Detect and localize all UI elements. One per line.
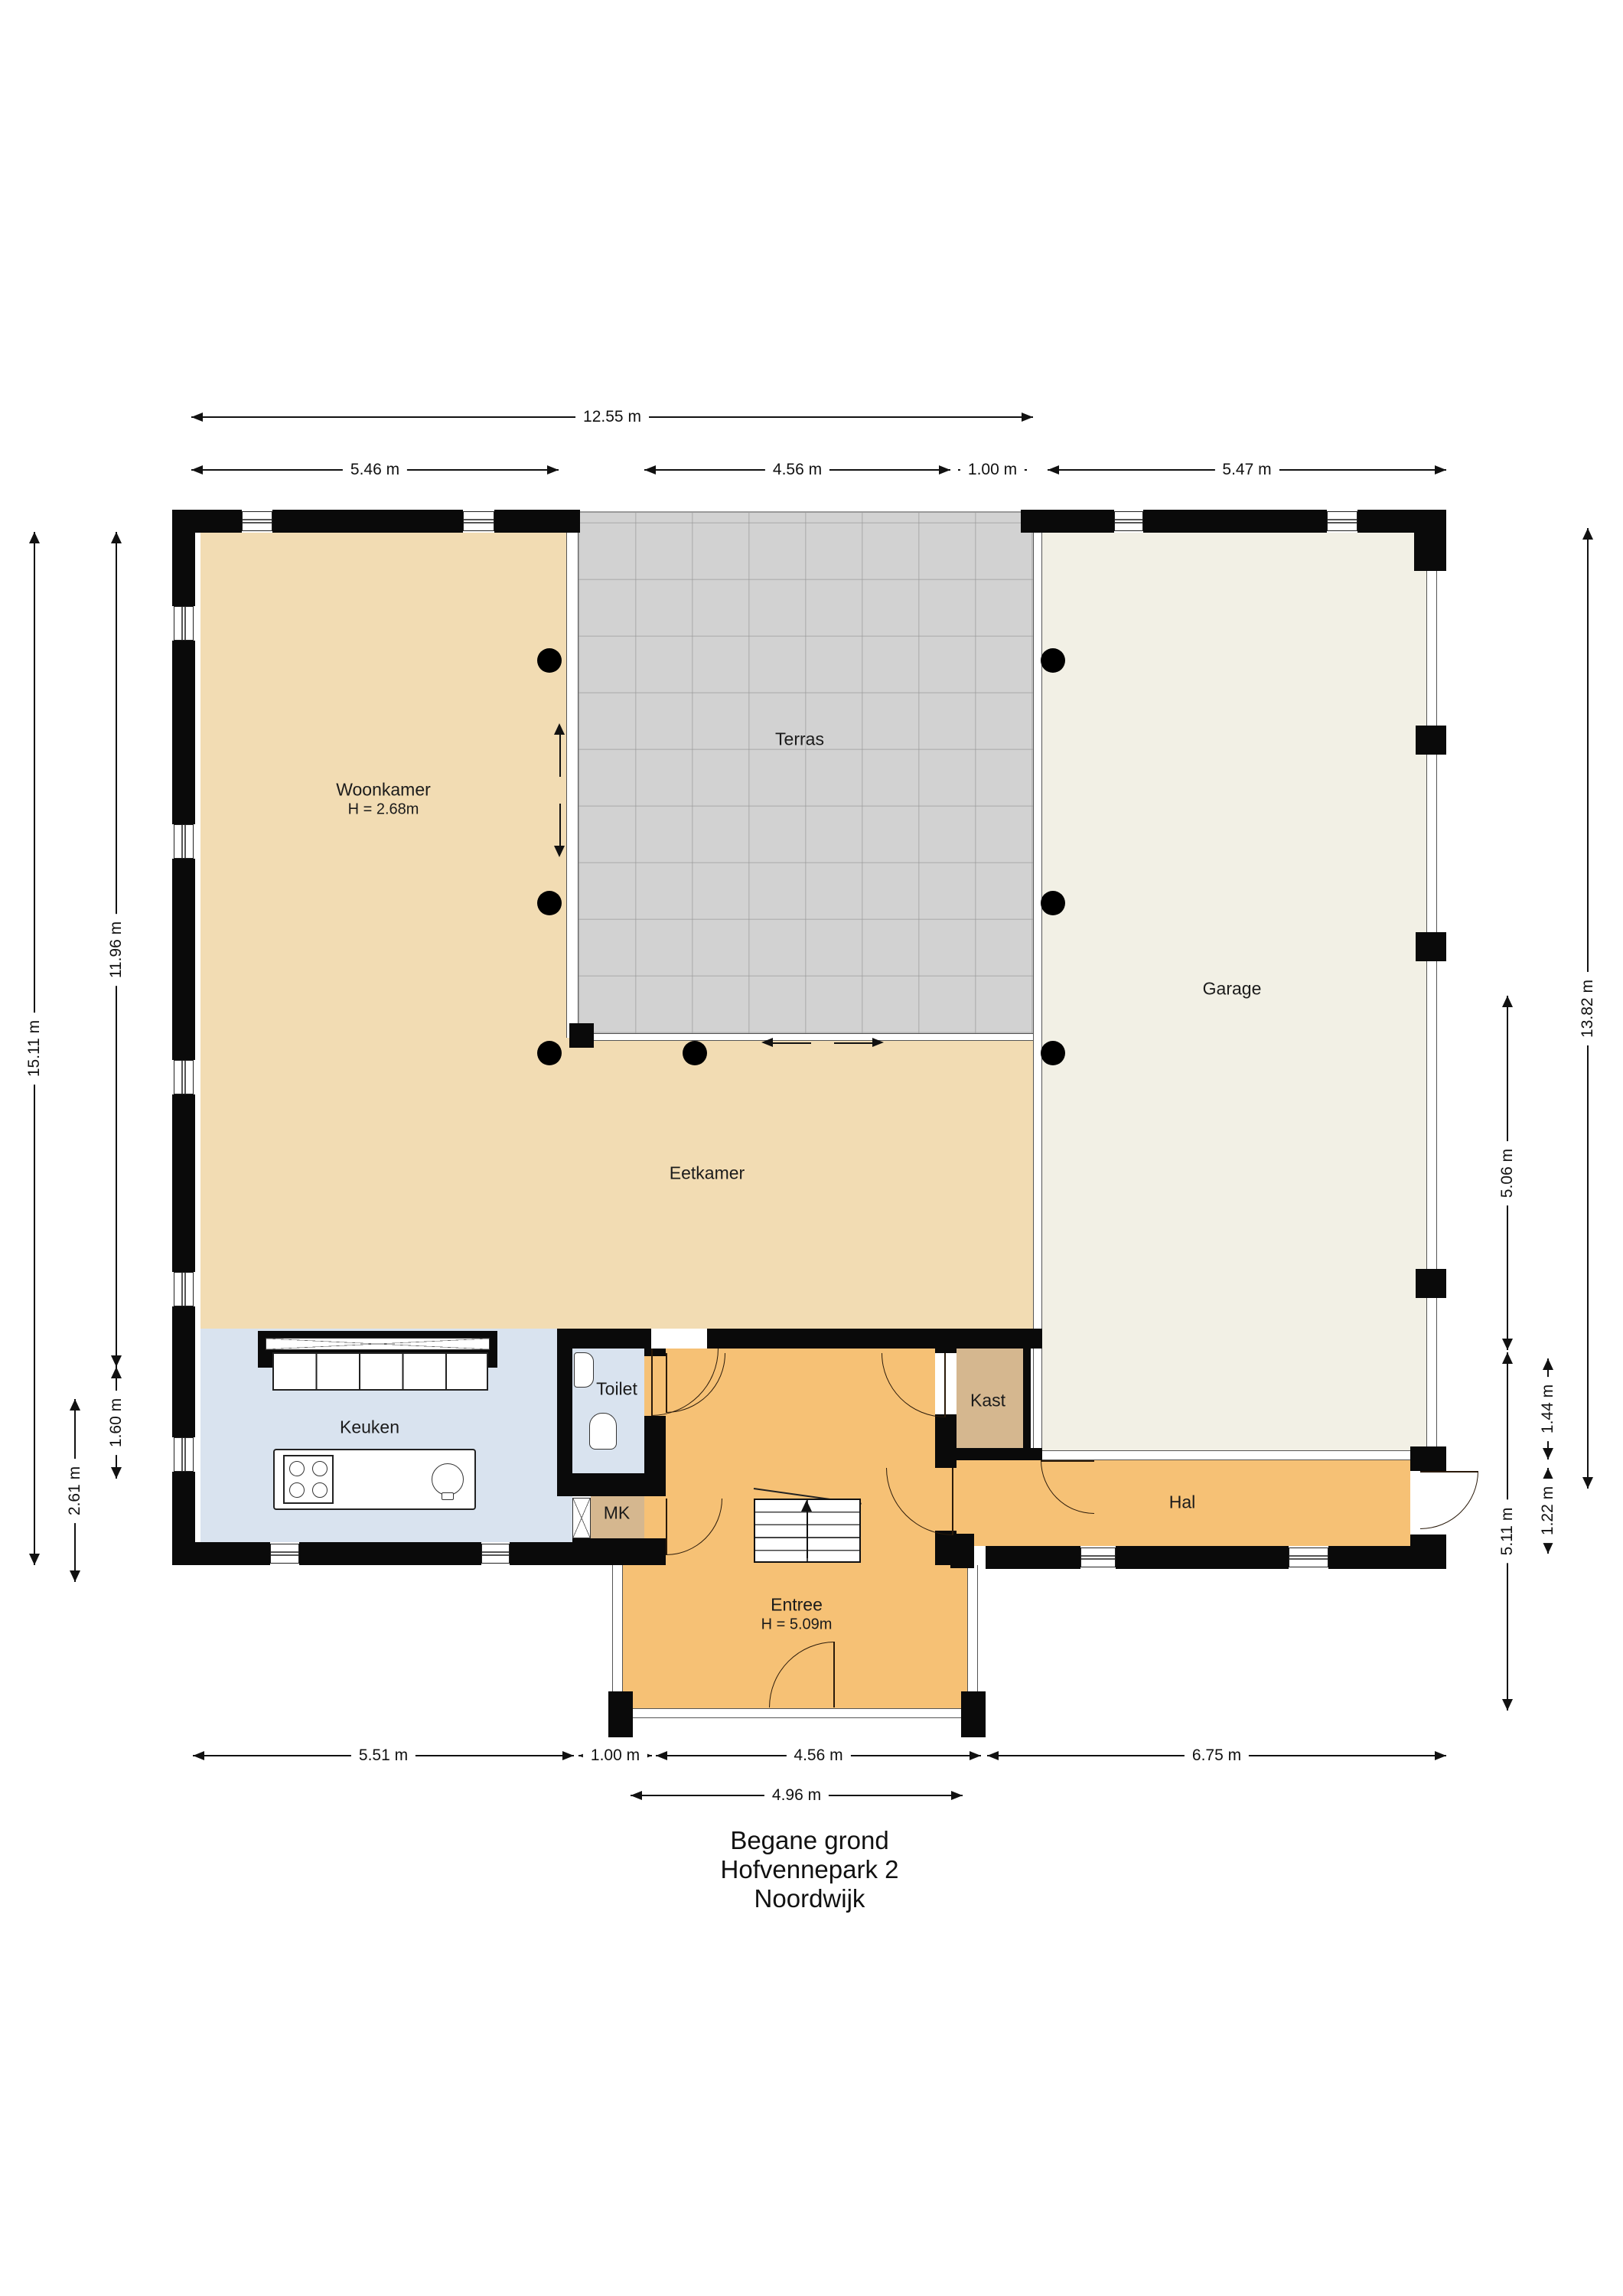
door-hal-exterior (1420, 1471, 1478, 1529)
dimension-label: 1.60 m (107, 1391, 125, 1455)
room-label: Eetkamer (670, 1163, 745, 1184)
dimension-part (1435, 465, 1446, 475)
window (1289, 1548, 1328, 1567)
wall-segment (1021, 510, 1114, 533)
dimension-part (970, 1751, 981, 1760)
window (1327, 511, 1357, 531)
sliding-door-arrow-head (872, 1038, 884, 1047)
dimension-part (191, 413, 203, 422)
wall-segment (961, 1691, 986, 1737)
dimension-line: 1.22 m (1539, 1468, 1557, 1554)
dimension-line: 2.61 m (66, 1399, 84, 1582)
window (463, 511, 494, 531)
wall-segment (172, 1094, 195, 1272)
dimension-part (644, 465, 656, 475)
dimension-label: 13.82 m (1579, 972, 1597, 1045)
column-dot (683, 1041, 707, 1065)
dimension-line: 5.47 m (1048, 461, 1446, 479)
duct-shaft (572, 1498, 591, 1538)
room-label: Woonkamer (336, 780, 431, 801)
room-eetkamer (572, 1041, 1033, 1329)
dimension-label: 4.56 m (786, 1746, 850, 1765)
dimension-label: 1.22 m (1539, 1479, 1557, 1543)
dimension-label: 4.56 m (765, 461, 829, 479)
dimension-label: 5.06 m (1498, 1140, 1517, 1205)
glass-wall (612, 1565, 623, 1693)
dimension-line: 5.11 m (1498, 1352, 1517, 1711)
glass-wall (629, 1708, 966, 1718)
window (174, 1437, 194, 1472)
dimension-part (111, 532, 122, 543)
room-label: Garage (1203, 979, 1262, 1000)
room-label: H = 5.09m (761, 1616, 833, 1634)
stove-burner (312, 1482, 328, 1498)
sliding-door-arrow (771, 1042, 811, 1044)
stove-burner (312, 1461, 328, 1476)
wall-segment (557, 1473, 666, 1496)
wall-segment (172, 510, 195, 606)
wall-segment (608, 1691, 633, 1737)
dimension-line: 4.56 m (644, 461, 950, 479)
dimension-part (1543, 1358, 1553, 1370)
wall-segment (1414, 510, 1446, 571)
wall-segment (272, 510, 463, 533)
wall-segment (172, 859, 195, 1060)
room-label: H = 2.68m (348, 801, 419, 819)
dimension-part (1543, 1542, 1553, 1554)
dimension-part (1543, 1448, 1553, 1459)
dimension-label: 1.00 m (583, 1746, 647, 1765)
wall-segment (1410, 1534, 1446, 1569)
room-woonkamer (200, 533, 572, 1329)
kitchen-counter-top (266, 1338, 490, 1350)
wall-segment (1416, 932, 1446, 961)
dimension-line: 5.46 m (191, 461, 559, 479)
wall-segment (950, 1534, 974, 1568)
dimension-line: 1.60 m (107, 1367, 125, 1479)
dimension-label: 2.61 m (66, 1458, 84, 1522)
wall-segment (1410, 1446, 1446, 1471)
dimension-line: 1.00 m (578, 1746, 652, 1765)
dimension-line: 1.44 m (1539, 1358, 1557, 1459)
wall-segment (935, 1460, 957, 1468)
dimension-part (1022, 413, 1033, 422)
dimension-part (191, 465, 203, 475)
room-label: Hal (1169, 1492, 1196, 1513)
dimension-part (656, 1751, 667, 1760)
dimension-part (1502, 1339, 1513, 1350)
wall-segment (569, 1023, 594, 1048)
dimension-part (631, 1791, 642, 1800)
stove-burner (289, 1482, 305, 1498)
dimension-line: 5.51 m (193, 1746, 574, 1765)
dimension-part (193, 1751, 204, 1760)
dimension-label: 1.44 m (1539, 1377, 1557, 1441)
wall-segment (986, 1546, 1080, 1569)
column-dot (537, 1041, 562, 1065)
dimension-part (29, 1554, 40, 1565)
sliding-door-arrow-head (761, 1038, 773, 1047)
dimension-part (111, 1355, 122, 1367)
glass-wall (1042, 1450, 1410, 1460)
window (1080, 1548, 1116, 1567)
dimension-part (111, 1467, 122, 1479)
dimension-part (1502, 996, 1513, 1007)
dimension-line: 6.75 m (987, 1746, 1446, 1765)
wall-segment (1416, 1269, 1446, 1298)
dimension-label: 11.96 m (107, 913, 125, 985)
dimension-part (939, 465, 950, 475)
wall-segment (935, 1414, 957, 1448)
dimension-part (1543, 1468, 1553, 1479)
sliding-door-arrow-head (554, 846, 565, 857)
window (242, 511, 272, 531)
kitchen-cabinets (272, 1352, 488, 1391)
dimension-part (1582, 1477, 1593, 1489)
glass-wall (578, 1033, 1033, 1041)
column-dot (1041, 1041, 1065, 1065)
dimension-part (547, 465, 559, 475)
title-city: Noordwijk (721, 1884, 899, 1913)
dimension-part (1435, 1751, 1446, 1760)
stairs-direction-arrow (807, 1511, 808, 1558)
dimension-line: 12.55 m (191, 408, 1033, 426)
title-address: Hofvennepark 2 (721, 1855, 899, 1884)
dimension-line: 11.96 m (107, 532, 125, 1367)
title-floor-name: Begane grond (721, 1826, 899, 1855)
plan-title: Begane grond Hofvennepark 2 Noordwijk (721, 1826, 899, 1913)
glass-wall (1033, 511, 1042, 1450)
window (270, 1544, 299, 1564)
column-dot (537, 891, 562, 915)
dimension-label: 6.75 m (1185, 1746, 1249, 1765)
column-dot (1041, 891, 1065, 915)
room-label: Entree (771, 1595, 823, 1616)
dimension-label: 5.46 m (343, 461, 407, 479)
wall-segment (1116, 1546, 1289, 1569)
window (481, 1544, 510, 1564)
glass-wall (967, 1565, 978, 1693)
kitchen-tap (442, 1492, 454, 1500)
dimension-part (1048, 465, 1059, 475)
sliding-door-arrow (559, 732, 561, 777)
window (1114, 511, 1143, 531)
dimension-line: 5.06 m (1498, 996, 1517, 1350)
column-dot (537, 648, 562, 673)
window (174, 824, 194, 859)
dimension-part (1502, 1352, 1513, 1364)
wall-segment (707, 1329, 946, 1349)
dimension-line: 4.96 m (631, 1786, 963, 1805)
dimension-label: 5.47 m (1214, 461, 1279, 479)
wall-segment (1416, 726, 1446, 755)
room-label: Keuken (340, 1417, 399, 1438)
wall-segment (172, 1542, 270, 1565)
wall-segment (172, 1306, 195, 1437)
wall-segment (946, 1329, 1042, 1349)
dimension-label: 5.11 m (1498, 1500, 1517, 1564)
dimension-label: 5.51 m (351, 1746, 416, 1765)
dimension-part (562, 1751, 574, 1760)
room-label: Kast (970, 1391, 1005, 1411)
window (174, 1272, 194, 1306)
wall-segment (1143, 510, 1327, 533)
dimension-part (1582, 528, 1593, 540)
glass-wall (1426, 536, 1437, 1446)
dimension-line: 13.82 m (1579, 528, 1597, 1489)
wall-segment (1023, 1349, 1031, 1460)
room-label: MK (604, 1503, 631, 1524)
wall-segment (299, 1542, 481, 1565)
wall-segment (608, 1542, 631, 1565)
dimension-line: 4.56 m (656, 1746, 981, 1765)
wall-segment (935, 1448, 1042, 1460)
sliding-door-arrow (834, 1042, 875, 1044)
dimension-part (111, 1367, 122, 1378)
dimension-part (1502, 1699, 1513, 1711)
dimension-line: 15.11 m (25, 532, 44, 1565)
window (174, 606, 194, 641)
sliding-door-arrow (559, 804, 561, 848)
column-dot (1041, 648, 1065, 673)
wall-segment (557, 1329, 572, 1473)
room-label: Terras (775, 729, 824, 750)
dimension-label: 4.96 m (764, 1786, 829, 1805)
window (174, 1060, 194, 1094)
dimension-label: 15.11 m (25, 1013, 44, 1084)
glass-wall (566, 511, 578, 1038)
dimension-part (29, 532, 40, 543)
stove (283, 1455, 334, 1504)
sliding-door-arrow-head (554, 723, 565, 735)
dimension-part (951, 1791, 963, 1800)
dimension-label: 12.55 m (575, 408, 649, 426)
dimension-part (70, 1399, 80, 1411)
floor-plan: Begane grond Hofvennepark 2 Noordwijk Wo… (0, 0, 1623, 2296)
room-label: Toilet (596, 1379, 637, 1400)
dimension-part (987, 1751, 999, 1760)
wall-segment (644, 1416, 666, 1473)
wall-segment (494, 510, 580, 533)
dimension-line: 1.00 m (958, 461, 1027, 479)
toilet-sink (574, 1352, 594, 1388)
kitchen-sink (432, 1463, 464, 1495)
stairs-direction-arrow-head (801, 1500, 812, 1512)
wall-segment (172, 641, 195, 824)
dimension-label: 1.00 m (960, 461, 1025, 479)
stove-burner (289, 1461, 305, 1476)
dimension-part (70, 1570, 80, 1582)
toilet-bowl (589, 1413, 617, 1450)
room-terras (578, 511, 1033, 1033)
